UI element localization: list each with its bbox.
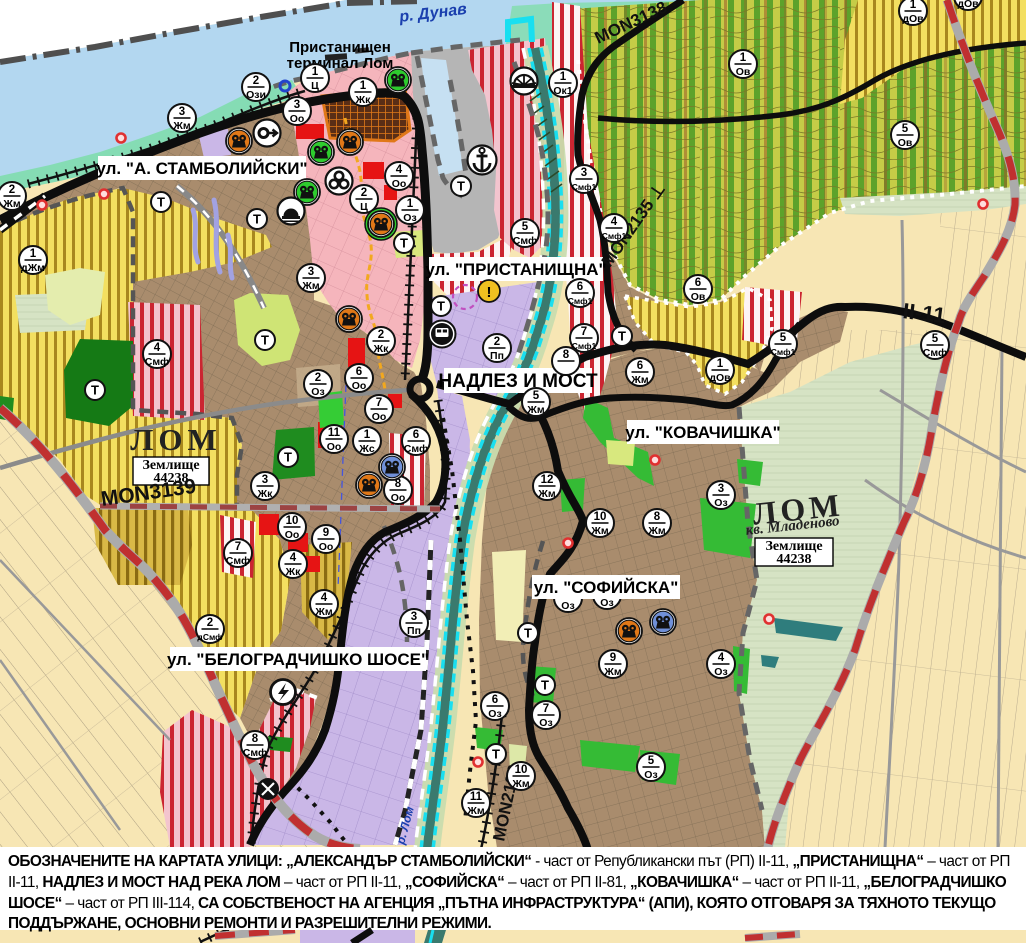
svg-text:Ц: Ц — [311, 80, 319, 92]
svg-text:Оз: Оз — [644, 769, 657, 781]
svg-text:11: 11 — [470, 791, 483, 803]
svg-text:Смф1: Смф1 — [568, 296, 593, 306]
svg-text:Смф: Смф — [404, 443, 428, 455]
svg-text:2: 2 — [361, 187, 367, 199]
svg-text:2: 2 — [9, 184, 15, 196]
svg-text:Оз: Оз — [311, 386, 324, 398]
svg-text:1: 1 — [30, 248, 37, 260]
svg-text:Оо: Оо — [319, 541, 334, 553]
svg-text:10: 10 — [594, 511, 607, 523]
svg-text:10: 10 — [286, 515, 299, 527]
svg-text:Смф: Смф — [243, 747, 267, 759]
svg-text:дОв: дОв — [957, 0, 979, 10]
svg-text:Т: Т — [400, 236, 408, 251]
svg-text:Оо: Оо — [392, 178, 407, 190]
svg-text:6: 6 — [637, 360, 643, 372]
svg-text:Жк: Жк — [257, 488, 273, 500]
svg-text:Ов: Ов — [736, 66, 751, 78]
svg-text:Т: Т — [524, 626, 532, 641]
svg-text:Оз: Оз — [488, 708, 501, 720]
svg-text:Жс: Жс — [358, 443, 374, 455]
svg-text:Жм: Жм — [603, 666, 621, 678]
svg-text:3: 3 — [179, 106, 185, 118]
svg-text:4: 4 — [154, 342, 161, 354]
svg-text:7: 7 — [581, 326, 587, 338]
svg-text:12: 12 — [541, 474, 554, 486]
svg-text:Смф1: Смф1 — [771, 347, 796, 357]
svg-text:ОБОЗНАЧЕНИТЕ НА КАРТАТА УЛИЦИ:: ОБОЗНАЧЕНИТЕ НА КАРТАТА УЛИЦИ: „АЛЕКСАНД… — [8, 852, 1010, 870]
svg-text:Жм: Жм — [630, 374, 648, 386]
svg-text:6: 6 — [492, 694, 498, 706]
svg-text:Ов: Ов — [691, 291, 706, 303]
svg-text:Т: Т — [618, 329, 626, 344]
svg-text:Жм: Жм — [2, 198, 20, 210]
svg-text:3: 3 — [411, 611, 417, 623]
svg-text:Т: Т — [284, 450, 292, 465]
svg-text:8: 8 — [654, 511, 661, 523]
svg-text:4: 4 — [321, 592, 328, 604]
svg-text:Пп: Пп — [490, 350, 504, 362]
svg-text:Пристанищен: Пристанищен — [289, 39, 391, 56]
svg-text:10: 10 — [515, 764, 528, 776]
svg-text:Т: Т — [91, 383, 99, 398]
svg-text:Оо: Оо — [391, 492, 406, 504]
svg-text:Пп: Пп — [407, 625, 421, 637]
svg-text:1: 1 — [360, 80, 367, 92]
svg-text:Смф1: Смф1 — [572, 182, 597, 192]
svg-text:Т: Т — [261, 333, 269, 348]
svg-text:3: 3 — [294, 99, 300, 111]
svg-text:1: 1 — [717, 358, 724, 370]
svg-text:3: 3 — [581, 167, 587, 179]
svg-text:3: 3 — [718, 483, 724, 495]
svg-text:Т: Т — [157, 195, 165, 210]
svg-text:ул. "БЕЛОГРАДЧИШКО ШОСЕ": ул. "БЕЛОГРАДЧИШКО ШОСЕ" — [167, 650, 429, 669]
svg-text:Жм: Жм — [511, 778, 529, 790]
svg-text:Смф: Смф — [513, 235, 537, 247]
svg-text:Жм: Жм — [314, 606, 332, 618]
svg-text:Жк: Жк — [285, 566, 301, 578]
svg-text:5: 5 — [648, 755, 655, 767]
svg-text:ШОСЕ“ – част от РП III-114, СА: ШОСЕ“ – част от РП III-114, СА СОБСТВЕНО… — [8, 895, 996, 912]
svg-text:4: 4 — [718, 652, 725, 664]
svg-text:6: 6 — [413, 429, 419, 441]
svg-text:Жм: Жм — [466, 805, 484, 817]
svg-text:2: 2 — [494, 336, 500, 348]
svg-text:II-11, НАДЛЕЗ И МОСТ НАД РЕКА: II-11, НАДЛЕЗ И МОСТ НАД РЕКА ЛОМ – част… — [8, 873, 1007, 891]
svg-text:Оо: Оо — [285, 529, 300, 541]
svg-text:Оо: Оо — [372, 411, 387, 423]
svg-text:2: 2 — [253, 75, 259, 87]
svg-text:7: 7 — [235, 541, 241, 553]
svg-text:Жм: Жм — [172, 120, 190, 132]
svg-text:Т: Т — [253, 212, 261, 227]
svg-text:Оо: Оо — [352, 380, 367, 392]
svg-text:1: 1 — [312, 66, 319, 78]
svg-text:1: 1 — [407, 198, 414, 210]
svg-text:ул. "КОВАЧИШКА": ул. "КОВАЧИШКА" — [625, 423, 781, 442]
svg-text:ул. "ПРИСТАНИЩНА": ул. "ПРИСТАНИЩНА" — [425, 260, 606, 279]
svg-text:II-11: II-11 — [901, 298, 947, 328]
svg-text:5: 5 — [932, 333, 939, 345]
svg-text:4: 4 — [290, 552, 297, 564]
svg-text:Жк: Жк — [355, 94, 371, 106]
svg-text:6: 6 — [577, 281, 583, 293]
svg-text:Жм: Жм — [647, 525, 665, 537]
svg-text:5: 5 — [522, 221, 529, 233]
svg-text:Оз: Оз — [539, 717, 552, 729]
svg-text:дСмф: дСмф — [197, 632, 223, 642]
svg-text:7: 7 — [376, 397, 382, 409]
svg-text:4: 4 — [396, 164, 403, 176]
svg-text:ЛОМ: ЛОМ — [130, 422, 221, 457]
svg-text:Ок1: Ок1 — [553, 85, 572, 97]
svg-text:5: 5 — [533, 390, 540, 402]
svg-text:Оо: Оо — [327, 441, 342, 453]
svg-text:8: 8 — [563, 349, 570, 361]
svg-text:7: 7 — [543, 703, 549, 715]
svg-text:Смф1: Смф1 — [602, 231, 627, 241]
svg-text:Жм: Жм — [526, 404, 544, 416]
svg-text:Ц: Ц — [360, 201, 368, 213]
svg-text:терминал Лом: терминал Лом — [287, 55, 394, 72]
svg-text:Смф: Смф — [145, 356, 169, 368]
svg-text:3: 3 — [308, 266, 314, 278]
svg-text:Оо: Оо — [290, 113, 305, 125]
svg-text:2: 2 — [207, 617, 213, 629]
svg-text:4: 4 — [611, 216, 618, 228]
svg-text:Жм: Жм — [301, 280, 319, 292]
svg-text:1: 1 — [910, 0, 917, 11]
svg-text:Смф: Смф — [226, 555, 250, 567]
svg-text:Жм: Жм — [537, 488, 555, 500]
svg-text:1: 1 — [740, 52, 747, 64]
svg-text:Смф: Смф — [923, 347, 947, 359]
svg-text:НАДЛЕЗ И МОСТ: НАДЛЕЗ И МОСТ — [438, 371, 598, 392]
svg-text:Жм: Жм — [590, 525, 608, 537]
svg-text:Ози: Ози — [246, 89, 266, 101]
svg-text:Оз: Оз — [714, 666, 727, 678]
svg-text:Т: Т — [541, 678, 549, 693]
svg-text:5: 5 — [902, 123, 909, 135]
svg-text:8: 8 — [252, 733, 259, 745]
svg-text:дОв: дОв — [709, 372, 731, 384]
svg-text:Оз: Оз — [561, 600, 574, 612]
svg-text:дОв: дОв — [902, 13, 924, 25]
svg-text:11: 11 — [328, 427, 341, 439]
svg-text:1: 1 — [364, 429, 371, 441]
svg-text:Оз: Оз — [403, 212, 416, 224]
svg-text:5: 5 — [780, 332, 787, 344]
svg-text:Жк: Жк — [373, 343, 389, 355]
svg-text:Ов: Ов — [898, 137, 913, 149]
svg-text:Оз: Оз — [714, 497, 727, 509]
svg-text:3: 3 — [262, 474, 268, 486]
svg-text:1: 1 — [560, 71, 567, 83]
svg-text:ул. "СОФИЙСКА": ул. "СОФИЙСКА" — [534, 578, 679, 597]
svg-text:Т: Т — [492, 747, 500, 762]
svg-text:44238: 44238 — [777, 552, 812, 567]
svg-text:Т: Т — [457, 179, 465, 194]
svg-text:2: 2 — [315, 372, 321, 384]
svg-text:9: 9 — [323, 527, 329, 539]
svg-text:Т: Т — [437, 299, 445, 314]
svg-text:!: ! — [487, 284, 492, 301]
svg-text:6: 6 — [695, 277, 701, 289]
svg-text:ул. "А. СТАМБОЛИЙСКИ": ул. "А. СТАМБОЛИЙСКИ" — [96, 159, 307, 178]
svg-text:дЖм: дЖм — [21, 262, 45, 274]
svg-text:ПОДДЪРЖАНЕ, ОСНОВНИ РЕМОНТИ И: ПОДДЪРЖАНЕ, ОСНОВНИ РЕМОНТИ И РАЗРЕШИТЕЛ… — [8, 915, 491, 932]
svg-text:9: 9 — [610, 652, 616, 664]
svg-text:2: 2 — [378, 329, 384, 341]
svg-text:6: 6 — [356, 366, 362, 378]
